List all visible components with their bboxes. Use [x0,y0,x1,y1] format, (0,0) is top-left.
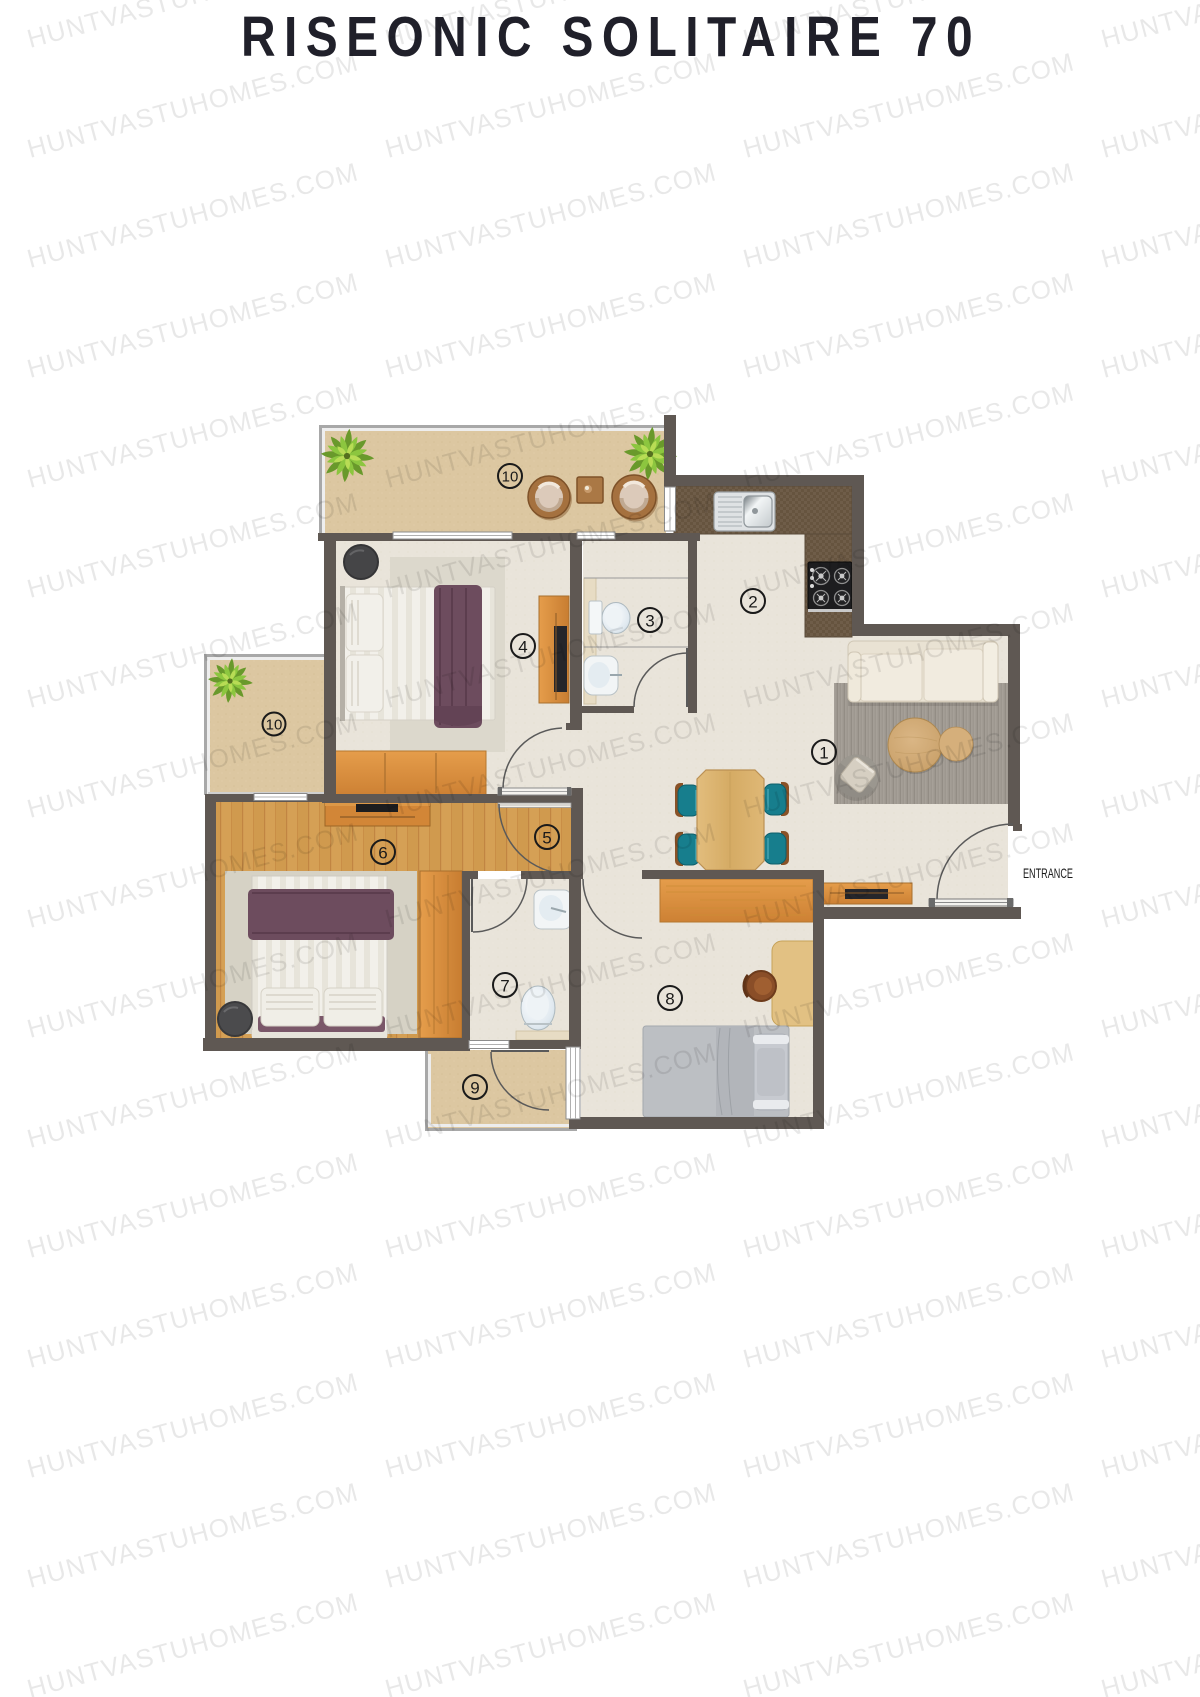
svg-text:5: 5 [542,829,551,848]
svg-text:1: 1 [819,744,828,763]
svg-text:6: 6 [378,844,387,863]
svg-text:9: 9 [470,1079,479,1098]
svg-text:ENTRANCE: ENTRANCE [1023,865,1073,881]
svg-text:8: 8 [665,990,674,1009]
svg-text:10: 10 [502,469,519,486]
